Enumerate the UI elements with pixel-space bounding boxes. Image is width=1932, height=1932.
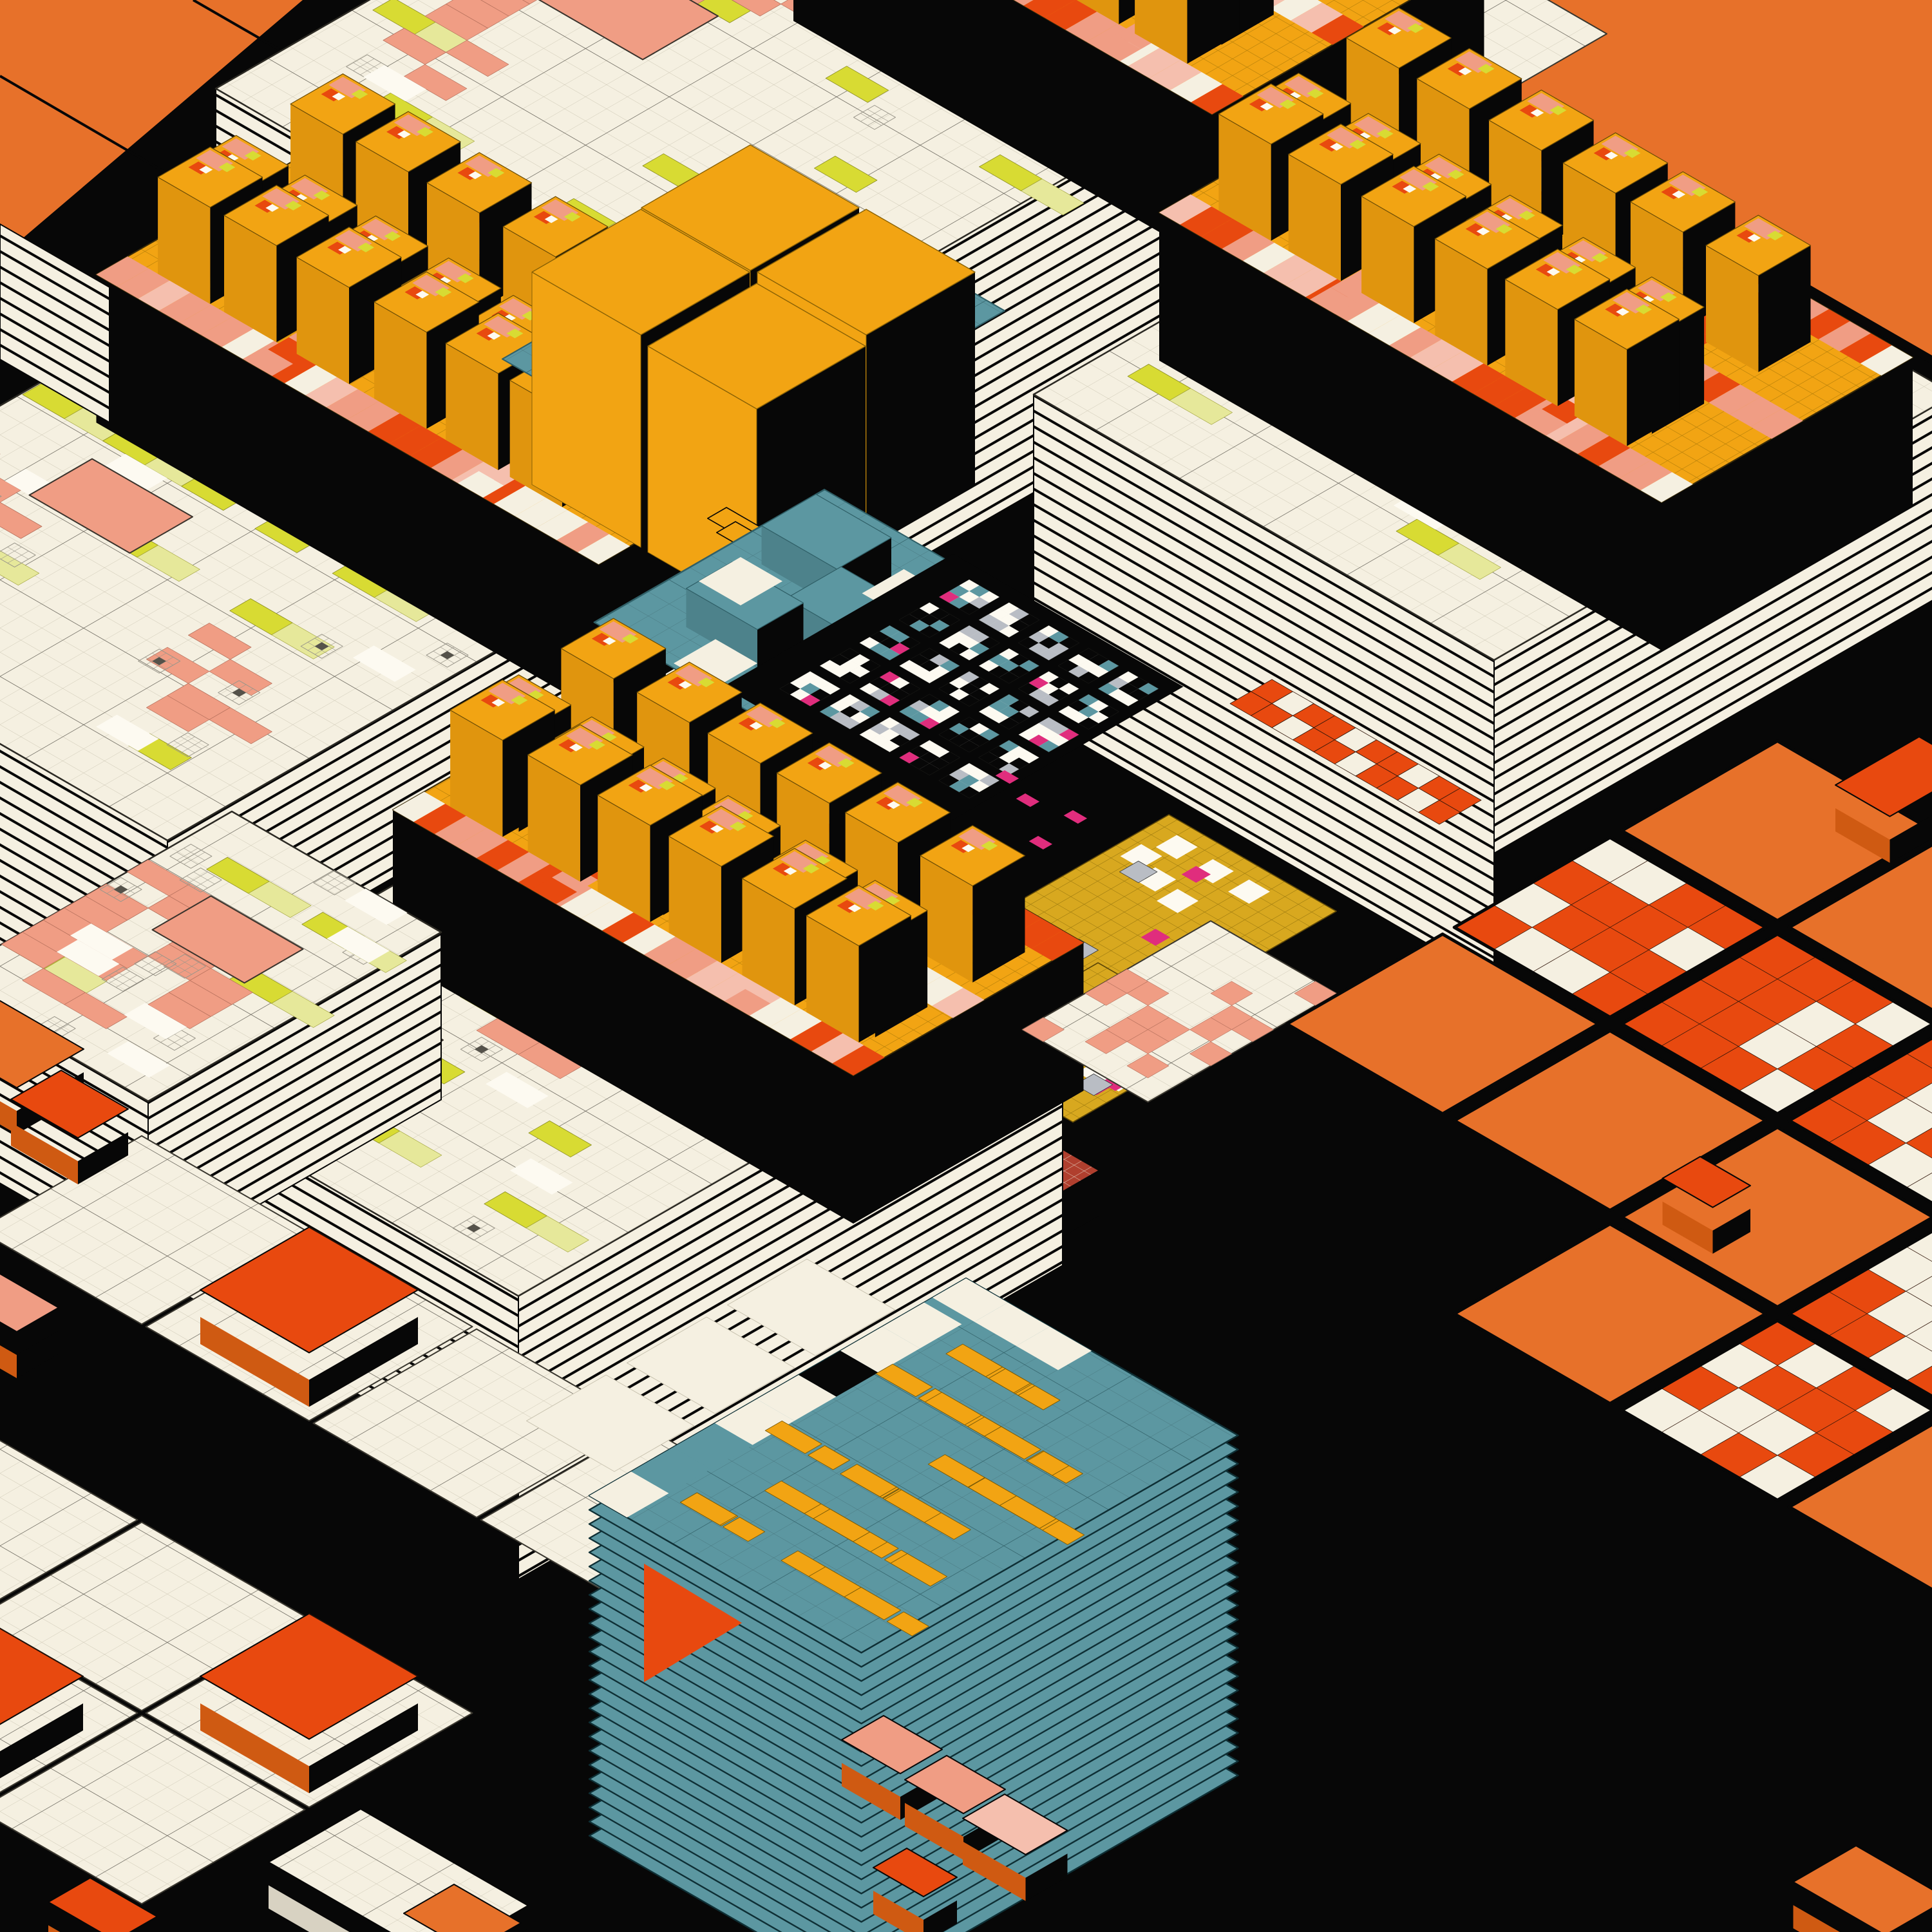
isometric-artwork [0,0,1932,1932]
artwork-canvas [0,0,1932,1932]
